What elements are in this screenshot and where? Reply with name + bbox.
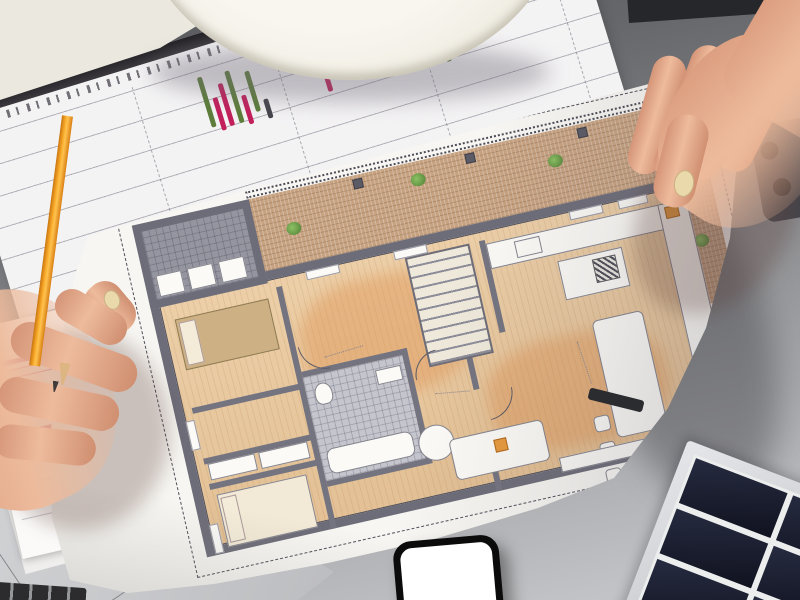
deck-plant (409, 172, 427, 188)
deck-post (352, 178, 364, 190)
deck-post (464, 152, 476, 164)
washer (155, 270, 185, 297)
desk-scene (0, 0, 800, 600)
candle-mark (263, 98, 274, 119)
deck-plant (547, 153, 565, 169)
sofa-cushion (493, 437, 509, 453)
smartphone (392, 534, 506, 600)
deck-post (576, 127, 588, 139)
dryer (187, 263, 217, 290)
deck-plant (285, 220, 303, 236)
smartphone-screen (399, 541, 498, 600)
utility-shelf (218, 256, 248, 283)
dining-chair (593, 414, 612, 433)
